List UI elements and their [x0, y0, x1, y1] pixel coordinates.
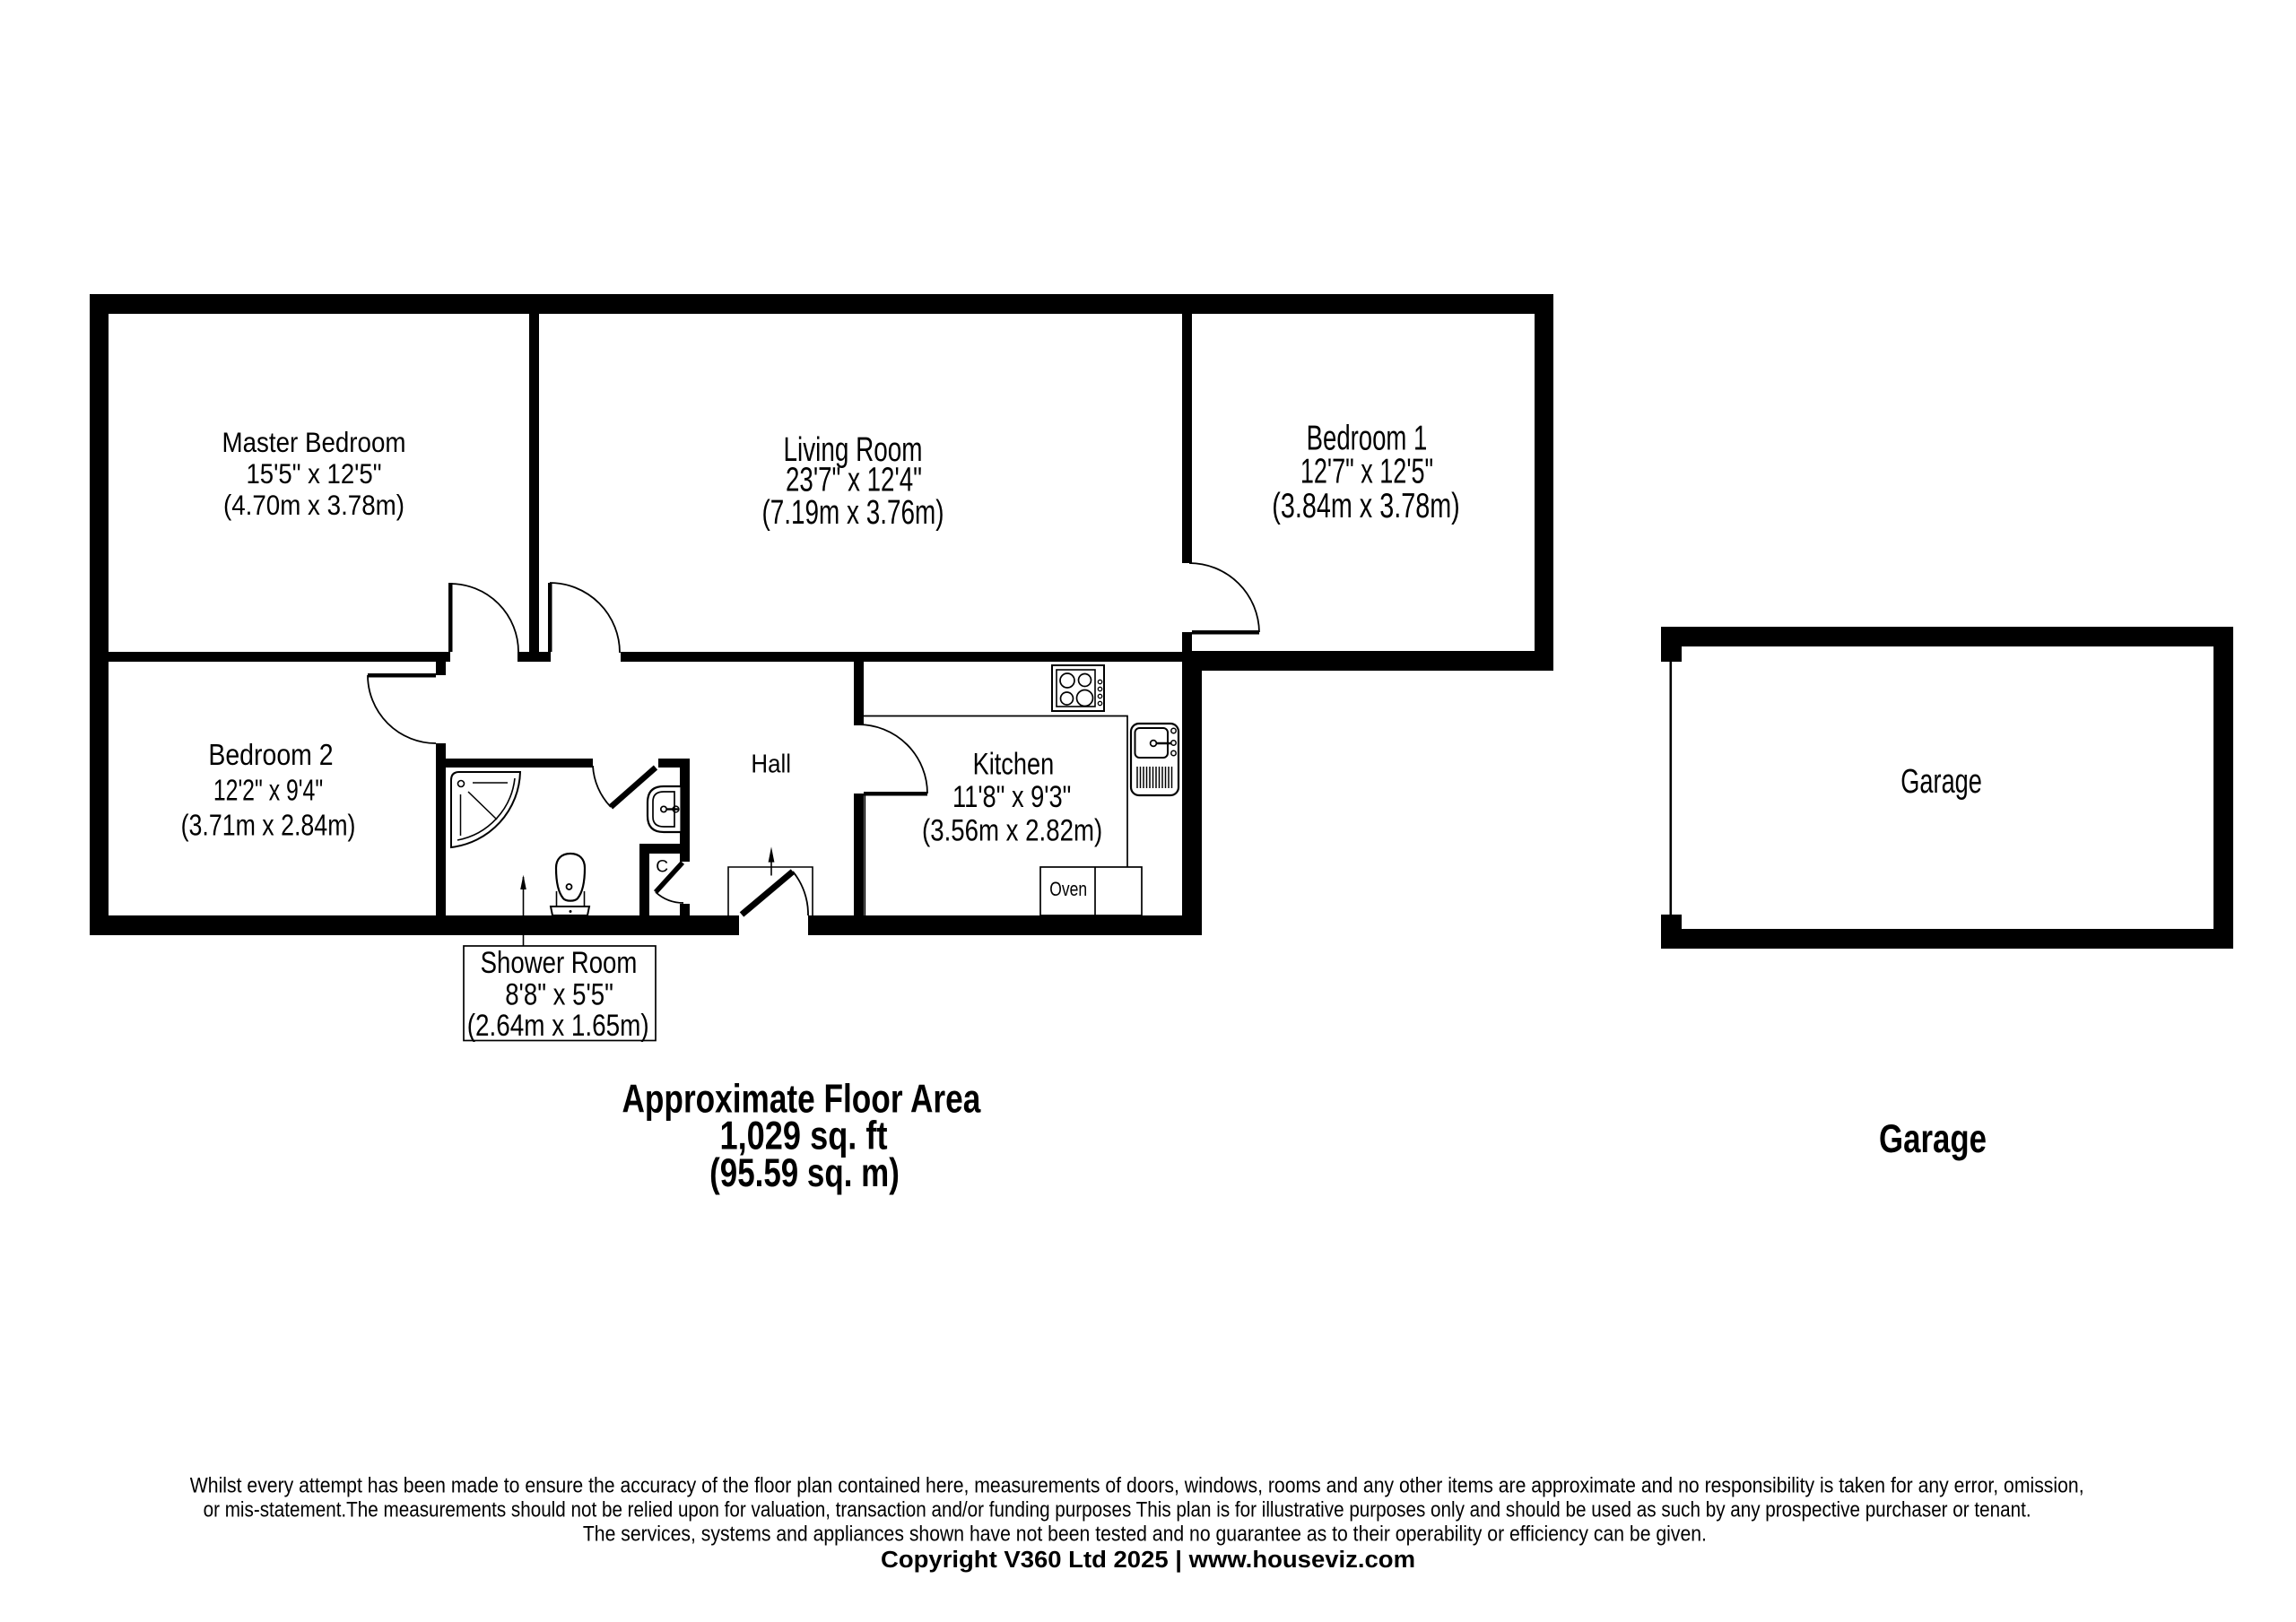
svg-text:Oven: Oven — [1049, 878, 1087, 900]
svg-text:(3.71m x 2.84m): (3.71m x 2.84m) — [181, 809, 356, 843]
svg-text:(7.19m x 3.76m): (7.19m x 3.76m) — [762, 494, 944, 532]
svg-text:Garage: Garage — [1900, 763, 1982, 801]
svg-text:(2.64m x 1.65m): (2.64m x 1.65m) — [467, 1009, 649, 1043]
svg-text:Bedroom 2: Bedroom 2 — [208, 738, 333, 772]
svg-text:Whilst every attempt has been: Whilst every attempt has been made to en… — [190, 1473, 2084, 1497]
svg-text:The services, systems and appl: The services, systems and appliances sho… — [583, 1522, 1707, 1547]
svg-text:Master Bedroom: Master Bedroom — [222, 426, 406, 458]
svg-text:12'7" x 12'5": 12'7" x 12'5" — [1300, 453, 1433, 491]
svg-text:Garage: Garage — [1879, 1117, 1987, 1161]
svg-text:(4.70m x 3.78m): (4.70m x 3.78m) — [223, 489, 404, 521]
svg-text:(95.59 sq. m): (95.59 sq. m) — [709, 1151, 900, 1195]
svg-text:Hall: Hall — [751, 750, 791, 778]
svg-text:(3.56m x 2.82m): (3.56m x 2.82m) — [922, 814, 1102, 848]
svg-text:8'8" x 5'5": 8'8" x 5'5" — [505, 978, 613, 1012]
svg-text:11'8" x 9'3": 11'8" x 9'3" — [952, 780, 1071, 814]
svg-text:or mis-statement.The measureme: or mis-statement.The measurements should… — [204, 1498, 2031, 1522]
svg-text:Kitchen: Kitchen — [973, 748, 1055, 782]
svg-text:C: C — [656, 858, 668, 877]
svg-text:15'5" x 12'5": 15'5" x 12'5" — [247, 457, 382, 490]
svg-text:Copyright V360 Ltd 2025 | www.: Copyright V360 Ltd 2025 | www.houseviz.c… — [881, 1548, 1415, 1573]
svg-text:Shower Room: Shower Room — [481, 946, 638, 980]
svg-text:12'2" x 9'4": 12'2" x 9'4" — [213, 774, 323, 808]
svg-text:(3.84m x 3.78m): (3.84m x 3.78m) — [1272, 487, 1460, 525]
